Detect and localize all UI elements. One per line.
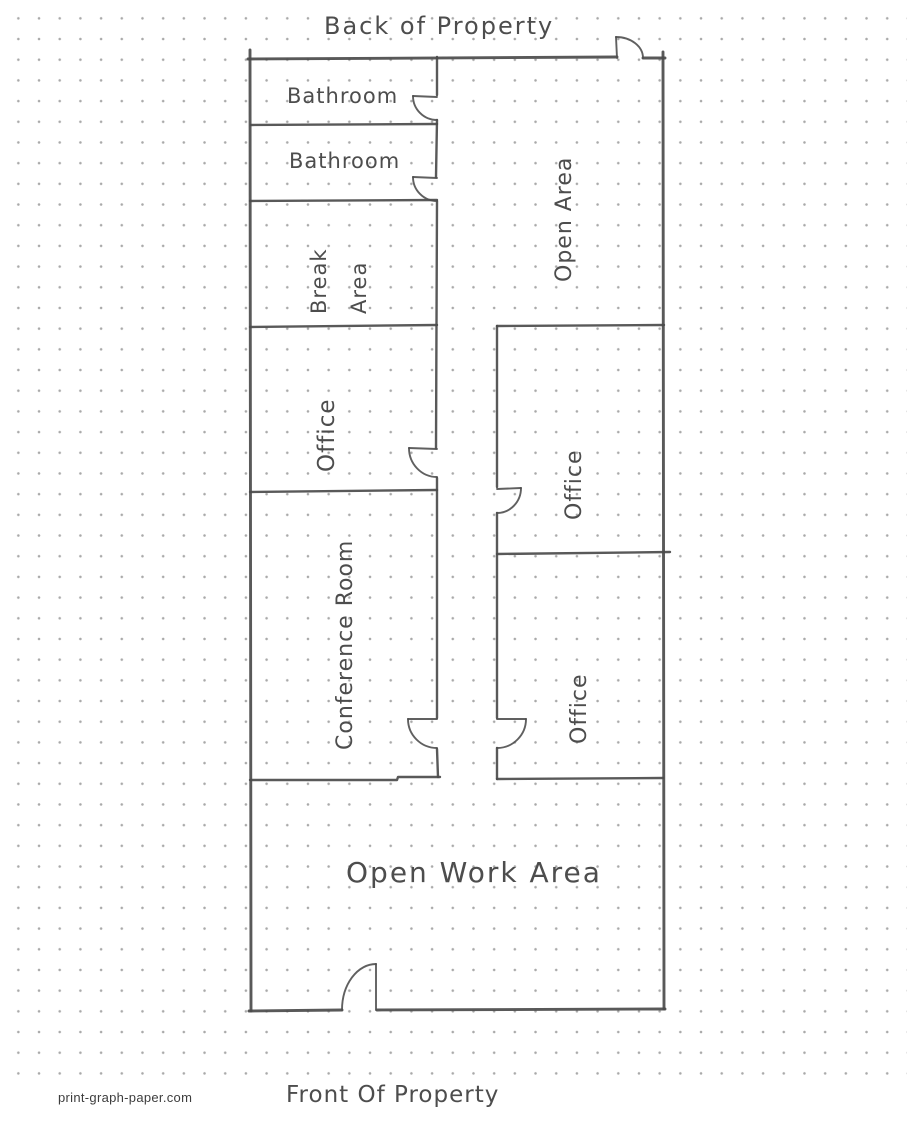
wall-corridor-left-seg2 <box>436 120 437 177</box>
back-of-property-label: Back of Property <box>324 12 554 40</box>
room-label-open-area: Open Area <box>552 157 577 282</box>
front-of-property-label: Front Of Property <box>286 1082 499 1108</box>
door-bathroom-top <box>413 96 437 120</box>
wall-office-right-divider <box>497 552 670 554</box>
wall-outer-left <box>250 50 251 1011</box>
door-office-right-upper <box>497 488 521 513</box>
wall-corridor-left-seg5 <box>437 749 438 777</box>
wall-office-lower-right-bottom <box>497 778 663 779</box>
wall-corridor-left-seg3 <box>436 201 437 448</box>
door-office-right-lower <box>497 719 526 748</box>
door-front-entrance <box>342 964 376 1010</box>
room-label-conference-room: Conference Room <box>333 540 358 750</box>
graph-paper-sheet: Back of Property Bathroom Bathroom Break… <box>0 0 907 1127</box>
door-office-left <box>409 448 437 477</box>
room-label-open-work-area: Open Work Area <box>346 856 602 889</box>
wall-outer-bottom-right-segment <box>377 1009 665 1010</box>
wall-outer-bottom-left-segment <box>249 1010 342 1011</box>
wall-office-left-bottom <box>250 490 437 492</box>
break-area-line2: Area <box>339 248 379 314</box>
door-conference-room <box>408 719 437 748</box>
floorplan-drawing <box>0 0 907 1127</box>
wall-outer-top-left-segment <box>248 57 617 59</box>
wall-conference-bottom <box>250 777 440 780</box>
door-bathroom-second <box>413 177 437 201</box>
wall-open-area-bottom <box>497 325 664 326</box>
room-label-office-right-upper: Office <box>562 449 587 520</box>
print-graph-paper-watermark: print-graph-paper.com <box>58 1090 192 1105</box>
door-back-entrance <box>616 37 643 58</box>
room-label-bathroom-second: Bathroom <box>289 149 400 173</box>
break-area-line1: Break <box>299 248 339 314</box>
room-label-office-left: Office <box>314 399 340 472</box>
room-label-office-right-lower: Office <box>567 673 592 744</box>
wall-bathroom2-bottom <box>250 200 437 201</box>
room-label-break-area: Break Area <box>299 248 379 314</box>
wall-bathroom-divider <box>251 124 437 125</box>
wall-outer-right <box>663 52 664 1009</box>
room-label-bathroom-top: Bathroom <box>287 84 398 108</box>
wall-break-area-bottom <box>250 325 437 327</box>
